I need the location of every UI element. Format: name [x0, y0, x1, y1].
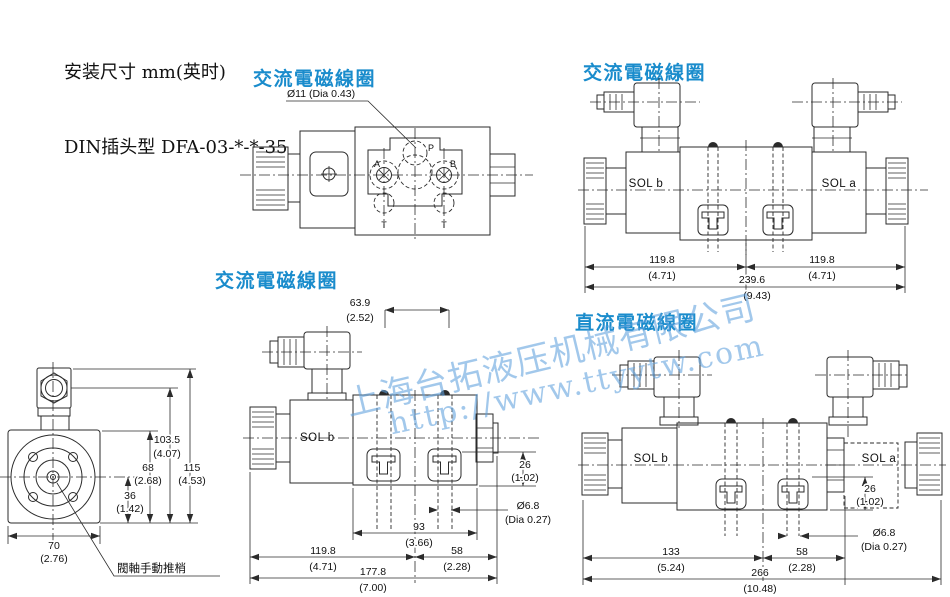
sol-a-label: SOL a — [822, 178, 857, 190]
dim-hole-in: (Dia 0.27) — [861, 541, 907, 553]
left-solenoid-housing — [622, 428, 677, 503]
dimension-lines: 103.5 (4.07) 68 (2.68) 115 (4.53) 36 (1.… — [8, 369, 206, 565]
dia-11-callout: Ø11 (Dia 0.43) — [286, 88, 416, 148]
bottom-mid-view: SOL b 63.9 (2.52) 26 (1.02) Ø6.8 (Dia 0.… — [243, 297, 551, 594]
top-mid-view: A B P T T Ø11 (Dia 0.43) — [240, 88, 533, 242]
dim-115-in: (4.53) — [178, 475, 205, 487]
left-end-cap — [582, 433, 622, 495]
din-connector — [262, 326, 362, 402]
dim-68-mm: 68 — [142, 462, 154, 474]
dim-1778-in: (7.00) — [359, 582, 386, 594]
din-connector-left — [612, 350, 712, 428]
solenoid-housing — [300, 131, 355, 228]
dim-58-mm: 58 — [451, 545, 463, 557]
dim-266-mm: 266 — [751, 567, 769, 579]
top-right-view: SOL b SOL a 119.8 (4.71) 119.8 (4.71) 23… — [578, 78, 928, 302]
dim-266-in: (10.48) — [743, 583, 776, 595]
dim-hole-in: (Dia 0.27) — [505, 514, 551, 526]
dim-right-mm: 119.8 — [809, 254, 835, 266]
dim-1198-mm: 119.8 — [310, 545, 336, 557]
dim-639-mm: 63.9 — [350, 297, 371, 309]
left-solenoid-housing — [626, 152, 680, 233]
left-end-cap — [584, 158, 626, 224]
dim-58-in: (2.28) — [443, 561, 470, 573]
dimension-lines: 119.8 (4.71) 119.8 (4.71) 239.6 (9.43) — [585, 226, 905, 302]
din-connector-right — [815, 350, 908, 438]
right-end-cap — [905, 433, 942, 495]
sol-b-label: SOL b — [634, 453, 669, 465]
sol-b-label: SOL b — [300, 432, 335, 444]
dimension-lines: 26 (1.02) Ø6.8 (Dia 0.27) 133 (5.24) 58 … — [583, 477, 941, 595]
dim-115-mm: 115 — [184, 462, 201, 474]
dim-left-in: (4.71) — [648, 270, 675, 282]
din-connector-left — [590, 78, 700, 152]
dim-left-mm: 119.8 — [649, 254, 675, 266]
port-label-t-right: T — [441, 220, 447, 230]
valve-end-face — [8, 430, 100, 523]
dim-1198-in: (4.71) — [309, 561, 336, 573]
dim-26-mm: 26 — [519, 459, 531, 471]
dim-36-mm: 36 — [124, 490, 136, 502]
manual-pin-label: 閥軸手動推梢 — [117, 561, 186, 575]
port-label-a: A — [374, 159, 380, 169]
bottom-right-view: SOL b SOL a 26 (1.02) Ø6.8 (Dia 0.27) 13… — [578, 350, 946, 595]
dim-26-in: (1.02) — [511, 472, 538, 484]
dia-11-label: Ø11 (Dia 0.43) — [287, 88, 355, 100]
dim-hole-mm: Ø6.8 — [873, 527, 896, 539]
drawing-canvas: A B P T T Ø11 (Dia 0.43) — [0, 0, 950, 597]
manual-pin-callout: 閥軸手動推梢 — [57, 483, 220, 576]
dim-133-mm: 133 — [662, 546, 680, 558]
dim-total-in: (9.43) — [743, 290, 770, 302]
dim-70-mm: 70 — [48, 540, 60, 552]
dim-36-in: (1.42) — [116, 503, 143, 515]
dim-26-in: (1.02) — [856, 496, 883, 508]
mounting-bolts — [716, 418, 808, 536]
dim-right-in: (4.71) — [808, 270, 835, 282]
dim-133-in: (5.24) — [657, 562, 684, 574]
dim-total-mm: 239.6 — [739, 274, 765, 286]
mounting-bolts — [698, 140, 793, 255]
hex-nut — [827, 438, 844, 492]
right-end-cap — [866, 158, 908, 224]
dim-93-in: (3.66) — [405, 537, 432, 549]
valve-body — [677, 423, 827, 510]
dim-70-in: (2.76) — [40, 553, 67, 565]
port-label-t-left: T — [381, 220, 387, 230]
bottom-left-view: 閥軸手動推梢 103.5 (4.07) 68 (2.68) 115 (4.53)… — [0, 362, 220, 576]
dimension-lines: 63.9 (2.52) 26 (1.02) Ø6.8 (Dia 0.27) 93… — [250, 297, 551, 594]
dim-1035-mm: 103.5 — [154, 434, 180, 446]
dim-hole-mm: Ø6.8 — [517, 500, 540, 512]
dim-1035-in: (4.07) — [153, 448, 180, 460]
port-label-p: P — [428, 143, 434, 153]
dim-93-mm: 93 — [413, 521, 425, 533]
dim-639-in: (2.52) — [346, 312, 373, 324]
sol-b-label: SOL b — [629, 178, 664, 190]
valve-body-face: A B P T T — [355, 127, 490, 235]
dim-68-in: (2.68) — [134, 475, 161, 487]
dim-58-mm: 58 — [796, 546, 808, 558]
solenoid-end-cap — [253, 147, 300, 210]
port-label-b: B — [450, 159, 456, 169]
mounting-bolts — [367, 390, 461, 530]
dim-26-mm: 26 — [864, 483, 876, 495]
din-connector-top — [37, 368, 71, 430]
sol-a-label: SOL a — [862, 453, 897, 465]
dim-58-in: (2.28) — [788, 562, 815, 574]
right-solenoid-housing — [812, 152, 866, 233]
dim-1778-mm: 177.8 — [360, 566, 386, 578]
din-connector-right — [792, 78, 902, 152]
